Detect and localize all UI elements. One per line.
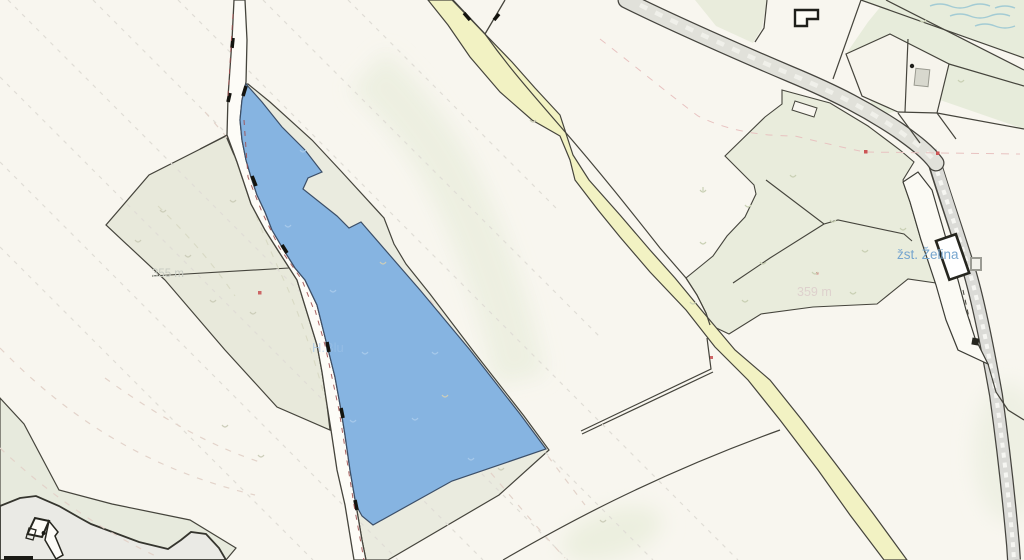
svg-text:359 m: 359 m xyxy=(797,285,832,299)
svg-text:žst. Želina: žst. Želina xyxy=(897,247,959,262)
svg-text:355 m: 355 m xyxy=(152,268,184,280)
